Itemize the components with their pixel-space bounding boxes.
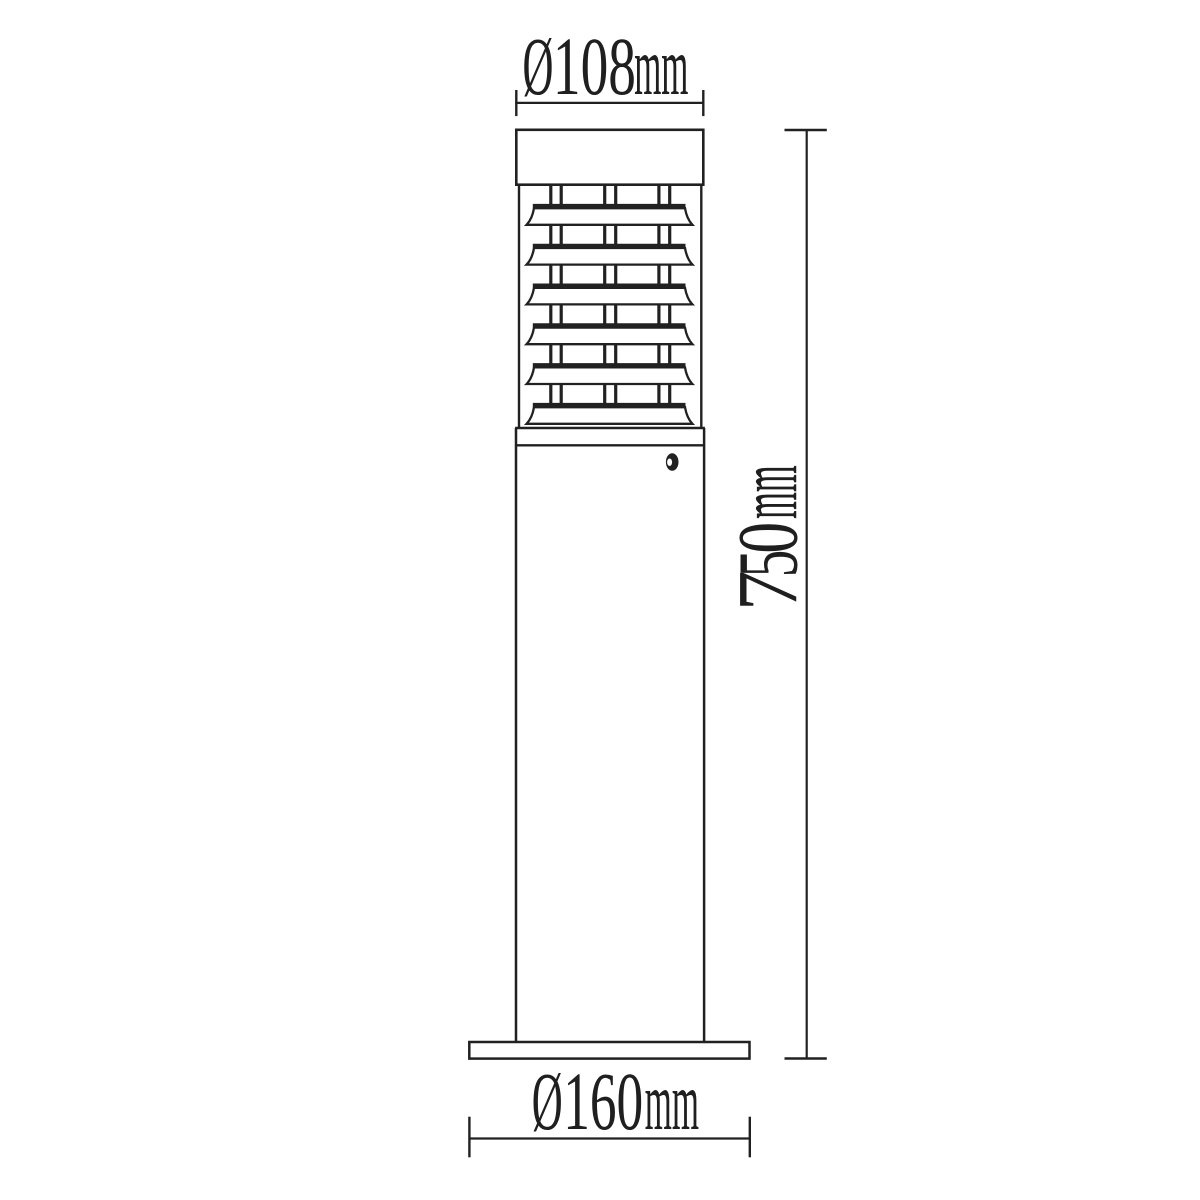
svg-text:160: 160 — [563, 1056, 643, 1148]
svg-text:Ø: Ø — [532, 1056, 563, 1148]
svg-text:108: 108 — [553, 21, 636, 113]
svg-text:mm: mm — [722, 465, 817, 519]
svg-text:0: 0 — [721, 522, 815, 554]
svg-text:Ø: Ø — [523, 21, 554, 113]
svg-text:mm: mm — [645, 1055, 699, 1148]
svg-text:mm: mm — [634, 20, 688, 113]
